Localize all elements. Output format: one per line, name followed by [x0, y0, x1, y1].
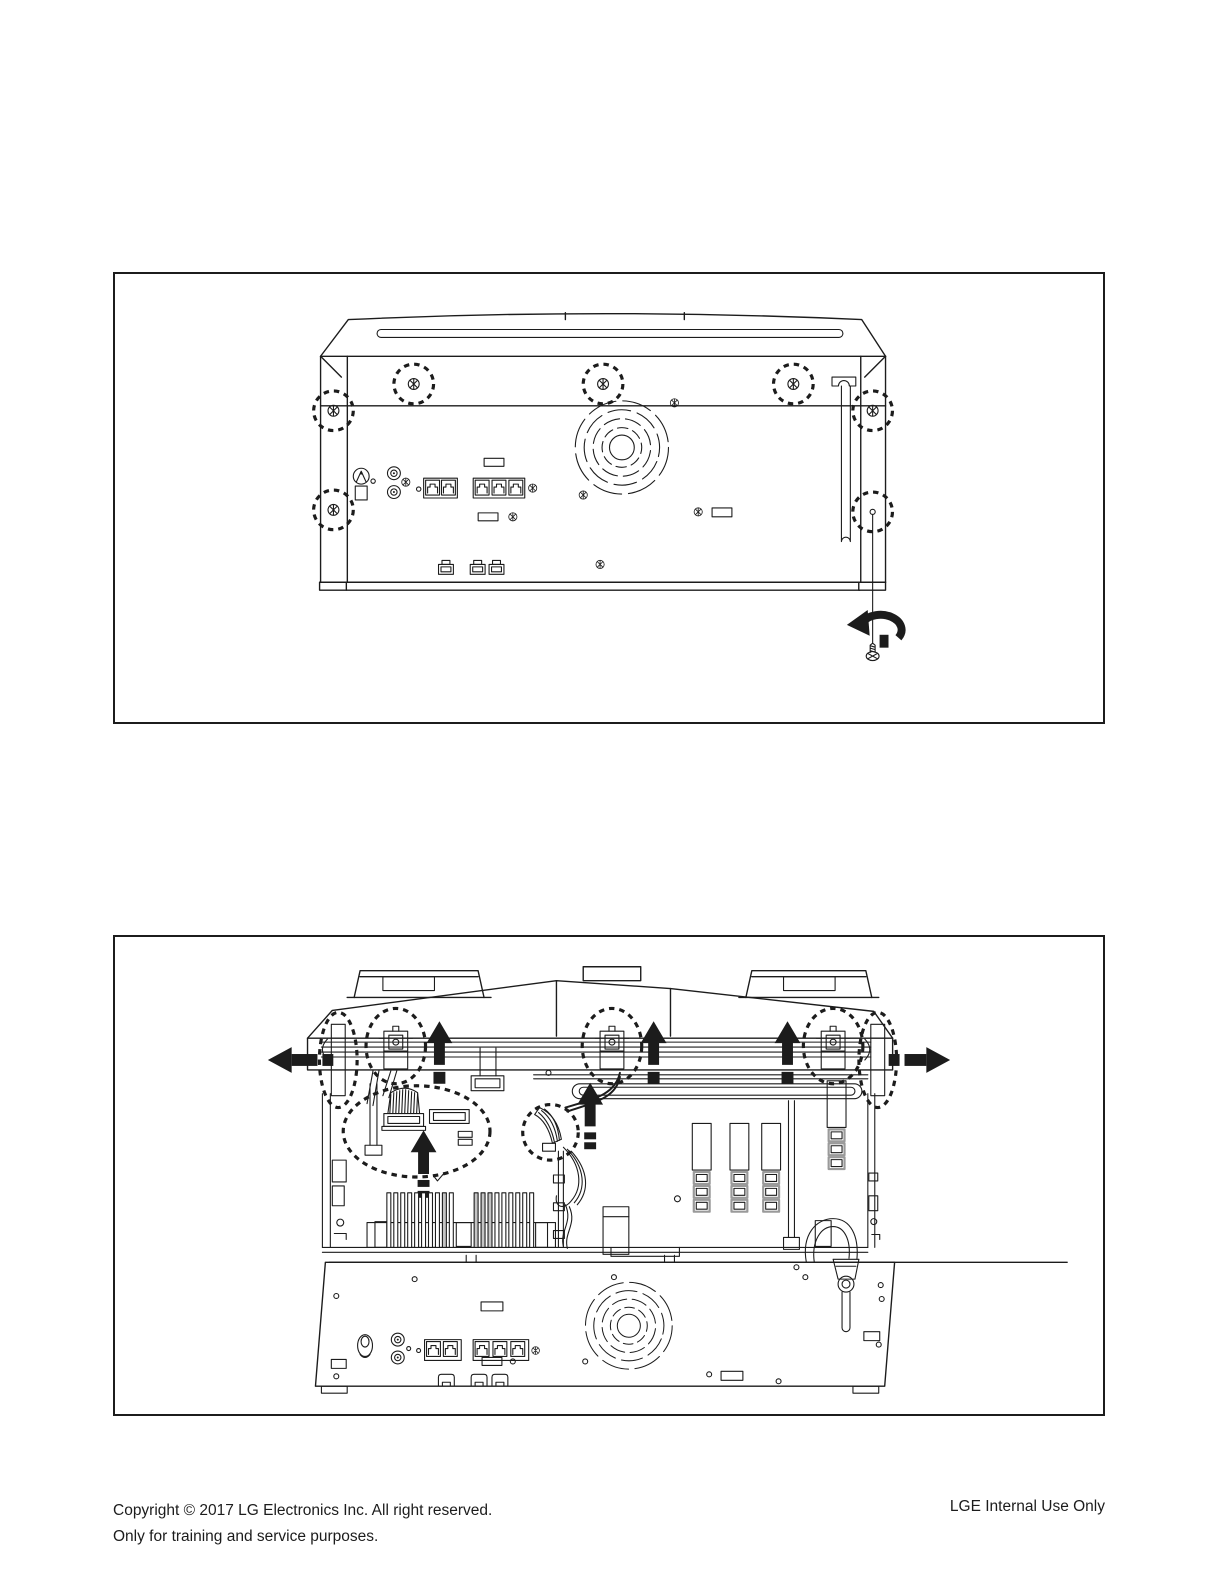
footer-copyright: Copyright © 2017 LG Electronics Inc. All… [113, 1498, 492, 1550]
loose-screw-icon [866, 643, 879, 660]
screw-callouts [314, 364, 893, 532]
heatsink-fins [387, 1193, 534, 1248]
harness-connector-callout [343, 1086, 490, 1198]
back-panel [315, 1255, 1067, 1393]
figure-back-panel-removal [113, 935, 1105, 1416]
fan-grille-icon [583, 1280, 674, 1371]
copyright-line-2: Only for training and service purposes. [113, 1524, 492, 1550]
panel-ports [331, 1275, 884, 1386]
latch-highlight-circle [803, 1008, 863, 1083]
back-panel-removal-diagram [115, 937, 1103, 1414]
copyright-line-1: Copyright © 2017 LG Electronics Inc. All… [113, 1498, 492, 1524]
pcb-components [603, 1081, 846, 1270]
rear-view-diagram [115, 274, 1103, 722]
figure-rear-screw-removal [113, 272, 1105, 724]
side-bar-right [859, 1012, 950, 1107]
screw-removal-callout [847, 509, 902, 660]
side-bar-left [268, 1012, 357, 1107]
left-arrow-icon [268, 1047, 292, 1073]
latch-callouts [366, 1008, 863, 1083]
latch-highlight-circle [582, 1008, 642, 1083]
wire-loops [553, 1147, 585, 1248]
rotation-arrow-head [847, 610, 870, 636]
cabinet-top-outline [308, 967, 893, 1038]
right-arrow-icon [926, 1047, 950, 1073]
rear-connector-panel [353, 399, 732, 575]
small-connector-callout [523, 1083, 603, 1160]
fan-grille-icon [573, 398, 671, 496]
power-cord [805, 1219, 859, 1332]
heatsink [367, 1193, 555, 1248]
footer-internal-use: LGE Internal Use Only [950, 1498, 1105, 1516]
